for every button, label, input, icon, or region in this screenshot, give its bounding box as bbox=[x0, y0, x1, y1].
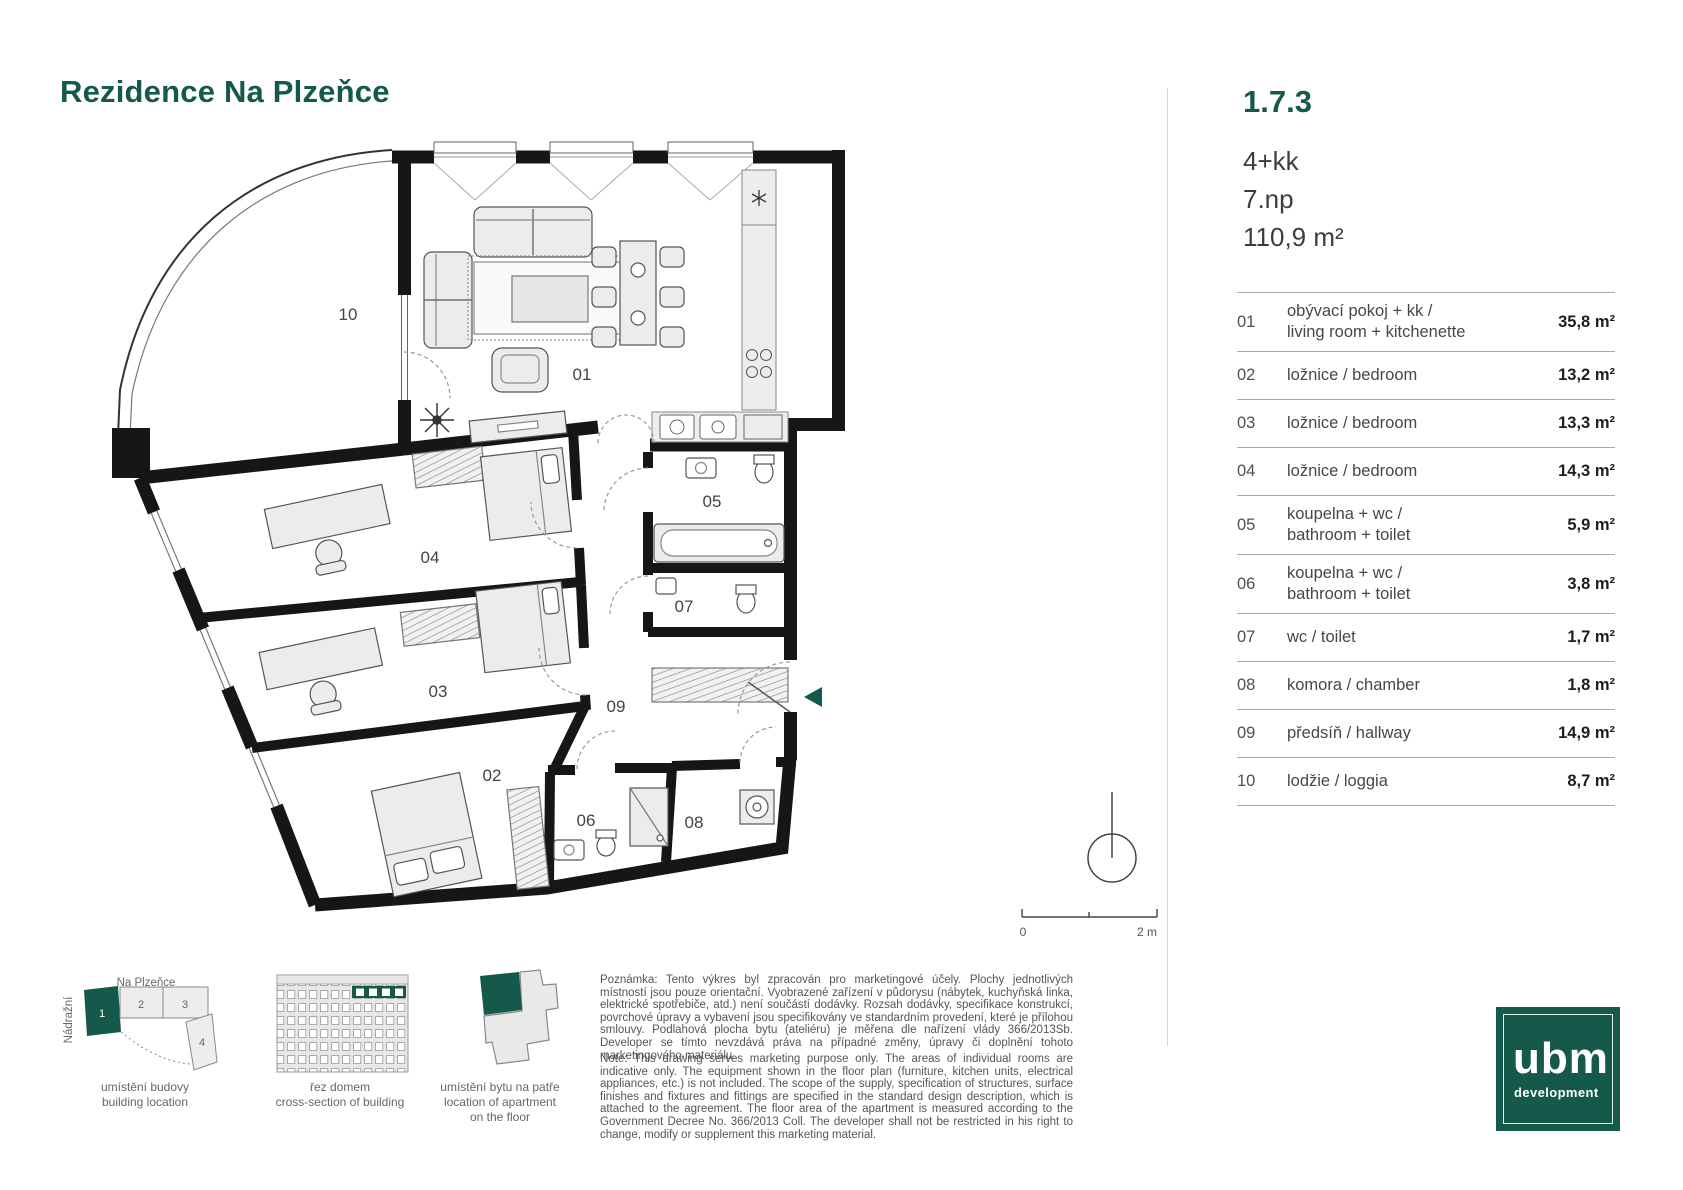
bed-03 bbox=[476, 581, 571, 672]
scale-zero-label: 0 bbox=[1020, 925, 1027, 939]
rooms-table: 01 obývací pokoj + kk /living room + kit… bbox=[1237, 292, 1615, 806]
dining-table bbox=[620, 241, 656, 345]
room-name: ložnice / bedroom bbox=[1287, 461, 1558, 482]
entrance-arrow-icon bbox=[804, 687, 822, 707]
scale-max-label: 2 m bbox=[1137, 925, 1157, 939]
sink-05-icon bbox=[686, 458, 716, 478]
unit-id: 1.7.3 bbox=[1243, 84, 1344, 120]
room-name: ložnice / bedroom bbox=[1287, 413, 1558, 434]
room-name: koupelna + wc /bathroom + toilet bbox=[1287, 504, 1567, 546]
caption-cross-section: řez domem cross-section of building bbox=[252, 1080, 428, 1110]
room-label-07: 07 bbox=[675, 597, 694, 616]
room-name: wc / toilet bbox=[1287, 627, 1567, 648]
room-number: 02 bbox=[1237, 366, 1287, 385]
desk-04 bbox=[264, 484, 397, 583]
room-area: 13,2 m² bbox=[1558, 366, 1615, 385]
living-room-furniture bbox=[420, 207, 684, 443]
table-row: 08 komora / chamber 1,8 m² bbox=[1237, 661, 1615, 709]
room-name: ložnice / bedroom bbox=[1287, 365, 1558, 386]
room-name: předsíň / hallway bbox=[1287, 723, 1558, 744]
room-label-06: 06 bbox=[577, 811, 596, 830]
room-area: 5,9 m² bbox=[1567, 516, 1615, 535]
table-row: 07 wc / toilet 1,7 m² bbox=[1237, 613, 1615, 661]
room-number: 10 bbox=[1237, 772, 1287, 791]
unit-area: 110,9 m² bbox=[1243, 218, 1344, 256]
marketing-sheet: Rezidence Na Plzeňce bbox=[0, 0, 1683, 1190]
room-label-03: 03 bbox=[429, 682, 448, 701]
room-label-08: 08 bbox=[685, 813, 704, 832]
svg-text:2: 2 bbox=[138, 999, 144, 1011]
room-area: 14,3 m² bbox=[1558, 462, 1615, 481]
room-label-01: 01 bbox=[573, 365, 592, 384]
room-name: komora / chamber bbox=[1287, 675, 1567, 696]
room-label-09: 09 bbox=[607, 697, 626, 716]
room-number: 04 bbox=[1237, 462, 1287, 481]
room-number: 08 bbox=[1237, 676, 1287, 695]
wardrobe-04 bbox=[412, 446, 485, 488]
bedroom-furniture bbox=[259, 446, 571, 897]
room-label-02: 02 bbox=[483, 766, 502, 785]
diagram-building-location: Na Plzeňce Nádražní 1 2 3 4 bbox=[63, 977, 217, 1070]
table-row: 02 ložnice / bedroom 13,2 m² bbox=[1237, 351, 1615, 399]
unit-layout: 4+kk bbox=[1243, 142, 1344, 180]
ubm-logo: ubm development bbox=[1496, 1007, 1620, 1131]
room-number: 03 bbox=[1237, 414, 1287, 433]
room-area: 35,8 m² bbox=[1558, 313, 1615, 332]
table-row: 09 předsíň / hallway 14,9 m² bbox=[1237, 709, 1615, 757]
bed-04 bbox=[481, 448, 572, 541]
plant-icon bbox=[420, 403, 454, 437]
room-area: 13,3 m² bbox=[1558, 414, 1615, 433]
svg-text:3: 3 bbox=[182, 999, 188, 1011]
room-label-10: 10 bbox=[339, 305, 358, 324]
svg-text:1: 1 bbox=[99, 1008, 105, 1020]
toilet-06-icon bbox=[597, 836, 615, 856]
north-indicator bbox=[1088, 792, 1136, 882]
caption-building-location: umístění budovy building location bbox=[72, 1080, 218, 1110]
table-row: 04 ložnice / bedroom 14,3 m² bbox=[1237, 447, 1615, 495]
desk-03 bbox=[259, 628, 390, 724]
svg-text:4: 4 bbox=[199, 1037, 205, 1049]
table-row: 01 obývací pokoj + kk /living room + kit… bbox=[1237, 292, 1615, 351]
unit-header: 1.7.3 4+kk 7.np 110,9 m² bbox=[1243, 84, 1344, 256]
sink-06-icon bbox=[554, 840, 584, 860]
table-row: 05 koupelna + wc /bathroom + toilet 5,9 … bbox=[1237, 495, 1615, 554]
room-area: 3,8 m² bbox=[1567, 575, 1615, 594]
logo-brand-text: ubm bbox=[1513, 1037, 1609, 1081]
sink-07-icon bbox=[656, 578, 676, 594]
room-number: 06 bbox=[1237, 575, 1287, 594]
street-label-left: Nádražní bbox=[63, 996, 75, 1043]
table-row: 06 koupelna + wc /bathroom + toilet 3,8 … bbox=[1237, 554, 1615, 613]
highlighted-apartment bbox=[480, 972, 522, 1015]
note-czech: Poznámka: Tento výkres byl zpracován pro… bbox=[600, 974, 1073, 1062]
wardrobe-03 bbox=[400, 604, 479, 646]
room-number: 09 bbox=[1237, 724, 1287, 743]
sink-icon bbox=[700, 415, 736, 439]
unit-floor: 7.np bbox=[1243, 180, 1344, 218]
wardrobe-02 bbox=[507, 786, 549, 889]
dishwasher-icon bbox=[660, 415, 694, 439]
room-number: 01 bbox=[1237, 313, 1287, 332]
room-label-05: 05 bbox=[703, 492, 722, 511]
room-name: koupelna + wc /bathroom + toilet bbox=[1287, 563, 1567, 605]
bed-02 bbox=[371, 772, 481, 896]
room-number: 07 bbox=[1237, 628, 1287, 647]
table-row: 03 ložnice / bedroom 13,3 m² bbox=[1237, 399, 1615, 447]
room-area: 1,8 m² bbox=[1567, 676, 1615, 695]
room-area: 1,7 m² bbox=[1567, 628, 1615, 647]
table-row: 10 lodžie / loggia 8,7 m² bbox=[1237, 757, 1615, 805]
caption-apartment-location: umístění bytu na patře location of apart… bbox=[415, 1080, 585, 1125]
scale-bar bbox=[1022, 909, 1157, 917]
note-english: Note: This drawing serves marketing purp… bbox=[600, 1053, 1073, 1141]
room-area: 14,9 m² bbox=[1558, 724, 1615, 743]
diagram-apartment-location bbox=[480, 970, 558, 1064]
room-name: lodžie / loggia bbox=[1287, 771, 1567, 792]
room-label-04: 04 bbox=[421, 548, 440, 567]
diagram-cross-section bbox=[277, 975, 408, 1072]
logo-sub-text: development bbox=[1514, 1085, 1599, 1100]
room-name: obývací pokoj + kk /living room + kitche… bbox=[1287, 301, 1558, 343]
room-area: 8,7 m² bbox=[1567, 772, 1615, 791]
room-number: 05 bbox=[1237, 516, 1287, 535]
